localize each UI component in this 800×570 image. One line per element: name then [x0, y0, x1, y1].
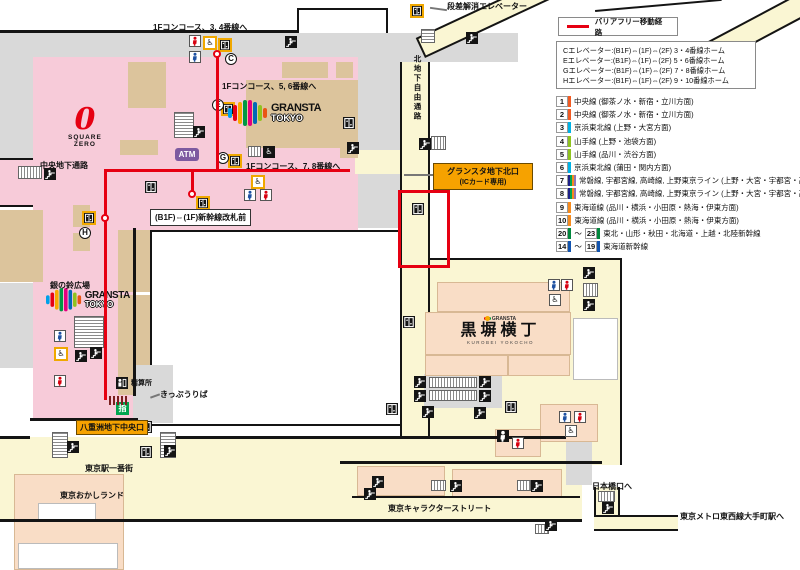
- wheelchair-icon: ♿: [54, 347, 68, 361]
- shop-block: [452, 469, 562, 497]
- wall-line: [133, 228, 136, 396]
- label-yaesu-exit: 八重洲地下中央口: [76, 420, 148, 435]
- legend-line-label: 東北・山形・秋田・北海道・上越・北陸新幹線: [603, 228, 761, 239]
- ticket-gate: [113, 396, 115, 405]
- wall-line: [0, 205, 33, 207]
- wall-line: [595, 0, 722, 12]
- legend-route-label: バリアフリー移動経路: [595, 16, 669, 38]
- female-restroom-icon: [260, 189, 272, 201]
- male-restroom-icon: [244, 189, 256, 201]
- legend-line-label: 京浜東北線 (上野・大宮方面): [574, 122, 671, 133]
- route-node: [101, 214, 109, 222]
- leader-line: [404, 174, 433, 176]
- elevator-icon: [228, 154, 242, 168]
- legend-elevator-box: Cエレベーター:(B1F)⇔(1F)⇔(2F) 3・4番線ホームEエレベーター:…: [556, 41, 756, 89]
- legend-line-row: 3京浜東北線 (上野・大宮方面): [556, 121, 800, 134]
- route-node: [188, 190, 196, 198]
- elevator-icon: [218, 38, 232, 52]
- square-zero-text-2: ZERO: [68, 141, 102, 148]
- shop-block: [336, 62, 353, 78]
- wheelchair-icon: ♿: [565, 425, 577, 437]
- square-zero-logo: 0 SQUARE ZERO: [68, 106, 102, 148]
- stairs-icon: [18, 166, 42, 179]
- elevator-icon: [386, 403, 398, 415]
- gransta-tokyo-logo: GRANSTA TOKYO: [228, 100, 321, 126]
- escalator-icon: [583, 299, 595, 311]
- wall-line: [352, 496, 580, 498]
- zone-gray-left: [0, 62, 33, 158]
- elevator-icon: [505, 401, 517, 413]
- zone-passage-connector: [355, 150, 400, 174]
- platform-number-badge: 19: [585, 241, 600, 252]
- escalator-icon: [419, 138, 431, 150]
- escalator-icon: [479, 376, 491, 388]
- wheelchair-icon: ♿: [203, 36, 217, 50]
- escalator-icon: [164, 445, 176, 457]
- legend-line-row: 8常磐線, 宇都宮線, 高崎線, 上野東京ライン (上野・大宮・宇都宮・高崎方面…: [556, 187, 800, 200]
- legend-elevator-entry: Hエレベーター:(B1F)⇔(1F)⇔(2F) 9・10番線ホーム: [563, 76, 749, 86]
- stairs-icon: [429, 377, 477, 388]
- legend-line-row: 10東海道線 (品川・横浜・小田原・熱海・伊東方面): [556, 214, 800, 227]
- elevator-icon: [145, 181, 157, 193]
- escalator-icon: [545, 519, 557, 531]
- label-gransta-north-exit-line1: グランスタ地下北口: [434, 166, 532, 177]
- ticket-gate: [109, 396, 111, 405]
- gransta-logo-bars: [46, 288, 81, 311]
- platform-number-badge: 8: [556, 188, 576, 199]
- legend-line-label: 常磐線, 宇都宮線, 高崎線, 上野東京ライン (上野・大宮・宇都宮・高崎方面): [579, 175, 800, 186]
- kurobei-logo-dot: [485, 316, 490, 321]
- legend-line-row: 20～23東北・山形・秋田・北海道・上越・北陸新幹線: [556, 227, 800, 240]
- escalator-icon: [531, 480, 543, 492]
- platform-number-badge: 7: [556, 175, 576, 186]
- square-zero-text: SQUARE: [68, 134, 102, 141]
- elevator-icon: [343, 117, 355, 129]
- escalator-icon: [67, 441, 79, 453]
- barrier-free-route: [104, 172, 107, 400]
- legend-line-label: 東海道線 (品川・横浜・小田原・熱海・伊東方面): [574, 202, 739, 213]
- label-ichibangai: 東京駅一番街: [85, 463, 133, 474]
- label-north-passage: 北地下自由通路: [412, 55, 423, 125]
- platform-number-badge: 10: [556, 215, 571, 226]
- label-concourse-34: 1Fコンコース、3, 4番線へ: [153, 22, 247, 33]
- elevator-badge-c: C: [225, 53, 237, 65]
- route-node: [213, 50, 221, 58]
- shop-block: [128, 62, 166, 108]
- kurobei-title: 黒塀横丁: [438, 322, 563, 340]
- legend-line-row: 14～19東海道新幹線: [556, 240, 800, 253]
- label-shinkansen-gate: (B1F)⇔(1F)新幹線改札前: [150, 209, 251, 226]
- range-tilde: ～: [574, 241, 582, 252]
- legend-line-label: 中央線 (御茶ノ水・新宿・立川方面): [574, 109, 694, 120]
- platform-number-badge: 20: [556, 228, 571, 239]
- stairs-icon: [431, 136, 446, 150]
- label-nihonbashi-exit: 日本橋口へ: [592, 481, 632, 492]
- escalator-icon: [193, 126, 205, 138]
- kurobei-block: [508, 355, 570, 376]
- sub-block: [573, 318, 618, 380]
- wheelchair-icon: ♿: [251, 175, 265, 189]
- stairs-icon: [52, 432, 68, 458]
- ticket-gate: [125, 396, 127, 405]
- label-fare-office: 精算所: [131, 378, 152, 388]
- escalator-icon: [602, 502, 614, 514]
- barrier-free-route: [104, 169, 350, 172]
- escalator-icon: [474, 407, 486, 419]
- zone-notch: [297, 8, 388, 33]
- stairs-icon: [248, 146, 261, 157]
- wall-line: [340, 461, 602, 464]
- wall-line: [0, 519, 582, 522]
- elevator-icon: [140, 446, 152, 458]
- square-zero-mark: 0: [68, 106, 102, 134]
- male-restroom-icon: [189, 51, 201, 63]
- escalator-icon: [414, 390, 426, 402]
- gransta-logo-bars: [228, 100, 267, 126]
- legend-line-row: 5山手線 (品川・渋谷方面): [556, 148, 800, 161]
- label-gransta-north-exit: グランスタ地下北口 (ICカード専用): [433, 163, 533, 190]
- stairs-icon: [429, 390, 477, 401]
- stairs-icon: [517, 480, 531, 491]
- legend-line-row: 4山手線 (上野・池袋方面): [556, 135, 800, 148]
- gransta-logo-text-2: TOKYO: [85, 301, 130, 309]
- label-gransta-north-exit-line2: (ICカード専用): [434, 177, 532, 187]
- label-tozai-line: 東京メトロ東西線大手町駅へ: [680, 511, 784, 522]
- escalator-icon: [466, 32, 478, 44]
- platform-number-badge: 14: [556, 241, 571, 252]
- highlight-rectangle: [398, 190, 450, 268]
- elevator-icon: [196, 196, 210, 210]
- legend-line-label: 山手線 (上野・池袋方面): [574, 136, 656, 147]
- ticket-gate: [117, 396, 119, 405]
- elevator-icon: [403, 316, 415, 328]
- platform-number-badge: 1: [556, 96, 571, 107]
- escalator-icon: [414, 376, 426, 388]
- escalator-icon: [583, 267, 595, 279]
- escalator-icon: [90, 347, 102, 359]
- legend-line-list: 1中央線 (御茶ノ水・新宿・立川方面)2中央線 (御茶ノ水・新宿・立川方面)3京…: [556, 95, 800, 253]
- platform-number-badge: 2: [556, 109, 571, 120]
- elevator-badge-h: H: [79, 227, 91, 239]
- escalator-icon: [75, 350, 87, 362]
- label-concourse-56: 1Fコンコース、5, 6番線へ: [222, 81, 316, 92]
- wall-line: [0, 30, 298, 33]
- label-step-free-elevator: 段差解消エレベーター: [447, 1, 527, 12]
- stairs-icon: [174, 112, 194, 138]
- gransta-tokyo-logo: GRANSTA TOKYO: [46, 288, 130, 311]
- legend-route-box: バリアフリー移動経路: [558, 17, 678, 36]
- label-ticket-office: きっぷうりば: [160, 389, 208, 400]
- female-restroom-icon: [189, 35, 201, 47]
- leader-line: [430, 7, 447, 11]
- zone-metro-corridor: [594, 515, 678, 531]
- legend-line-row: 1中央線 (御茶ノ水・新宿・立川方面): [556, 95, 800, 108]
- female-restroom-icon: [512, 437, 524, 449]
- kurobei-yokocho-block: GRANSTA 黒塀横丁 KUROBEI YOKOCHO: [438, 316, 563, 345]
- legend-line-label: 京浜東北線 (蒲田・関内方面): [574, 162, 671, 173]
- platform-number-badge: 9: [556, 202, 571, 213]
- shop-block: [0, 210, 43, 282]
- wheelchair-icon: ♿: [549, 294, 561, 306]
- elevator-icon: [82, 211, 96, 225]
- ticket-gate: [121, 396, 123, 405]
- barrier-free-route: [191, 172, 194, 192]
- kurobei-block: [425, 355, 508, 376]
- zone-gray-block: [0, 283, 33, 368]
- zone-gray-right: [358, 62, 400, 228]
- barrier-free-route: [216, 56, 219, 172]
- shop-block: [120, 140, 158, 155]
- legend-line-row: 7常磐線, 宇都宮線, 高崎線, 上野東京ライン (上野・大宮・宇都宮・高崎方面…: [556, 174, 800, 187]
- escalator-icon: [364, 488, 376, 500]
- escalator-icon: [372, 476, 384, 488]
- platform-number-badge: 4: [556, 136, 571, 147]
- label-okashi-land: 東京おかしランド: [60, 490, 124, 501]
- platform-number-badge: 3: [556, 122, 571, 133]
- legend-line-row: 9東海道線 (品川・横浜・小田原・熱海・伊東方面): [556, 201, 800, 214]
- station-floor-map: ♿ ♿ ♿ ♿ 指 ♿ ♿: [0, 0, 800, 570]
- label-chuo-underpass: 中央地下通路: [40, 160, 88, 171]
- escalator-icon: [347, 142, 359, 154]
- legend-line-label: 東海道新幹線: [603, 241, 648, 252]
- legend-line-label: 常磐線, 宇都宮線, 高崎線, 上野東京ライン (上野・大宮・宇都宮・高崎方面): [579, 188, 800, 199]
- stairs-icon: [598, 491, 615, 502]
- wall-line: [0, 158, 33, 160]
- label-character-street: 東京キャラクターストリート: [388, 503, 491, 514]
- wheelchair-icon: ♿: [263, 146, 275, 158]
- stairs-icon: [74, 316, 104, 348]
- male-restroom-icon: [559, 411, 571, 423]
- stairs-icon: [431, 480, 446, 491]
- label-suzu-plaza: 銀の鈴広場: [50, 280, 90, 291]
- kurobei-subtitle: KUROBEI YOKOCHO: [438, 340, 563, 345]
- legend-line-row: 6京浜東北線 (蒲田・関内方面): [556, 161, 800, 174]
- male-restroom-icon: [548, 279, 560, 291]
- route-line-sample: [567, 25, 589, 28]
- female-restroom-icon: [574, 411, 586, 423]
- stairs-icon: [583, 283, 598, 297]
- fare-office-icon: [116, 377, 128, 389]
- legend-elevator-entry: Eエレベーター:(B1F)⇔(1F)⇔(2F) 5・6番線ホーム: [563, 56, 749, 66]
- female-restroom-icon: [561, 279, 573, 291]
- elevator-icon: [410, 4, 424, 18]
- escalator-icon: [450, 480, 462, 492]
- escalator-icon: [479, 390, 491, 402]
- platform-number-badge: 23: [585, 228, 600, 239]
- platform-number-badge: 5: [556, 149, 571, 160]
- legend-elevator-entry: Cエレベーター:(B1F)⇔(1F)⇔(2F) 3・4番線ホーム: [563, 46, 749, 56]
- sub-block: [18, 543, 118, 569]
- legend-line-label: 中央線 (御茶ノ水・新宿・立川方面): [574, 96, 694, 107]
- male-restroom-icon: [54, 330, 66, 342]
- stairs-icon: [421, 29, 435, 43]
- legend-line-label: 東海道線 (品川・横浜・小田原・熱海・伊東方面): [574, 215, 739, 226]
- wall-line: [0, 436, 30, 439]
- accessible-toilet-icon: [497, 430, 509, 442]
- escalator-icon: [422, 406, 434, 418]
- legend-line-label: 山手線 (品川・渋谷方面): [574, 149, 656, 160]
- platform-number-badge: 6: [556, 162, 571, 173]
- legend-elevator-entry: Gエレベーター:(B1F)⇔(1F)⇔(2F) 7・8番線ホーム: [563, 66, 749, 76]
- legend-line-row: 2中央線 (御茶ノ水・新宿・立川方面): [556, 108, 800, 121]
- shop-block: [282, 62, 328, 78]
- range-tilde: ～: [574, 228, 582, 239]
- female-restroom-icon: [54, 375, 66, 387]
- escalator-icon: [285, 36, 297, 48]
- gransta-logo-text-2: TOKYO: [271, 114, 321, 123]
- atm-icon: ATM: [175, 148, 199, 161]
